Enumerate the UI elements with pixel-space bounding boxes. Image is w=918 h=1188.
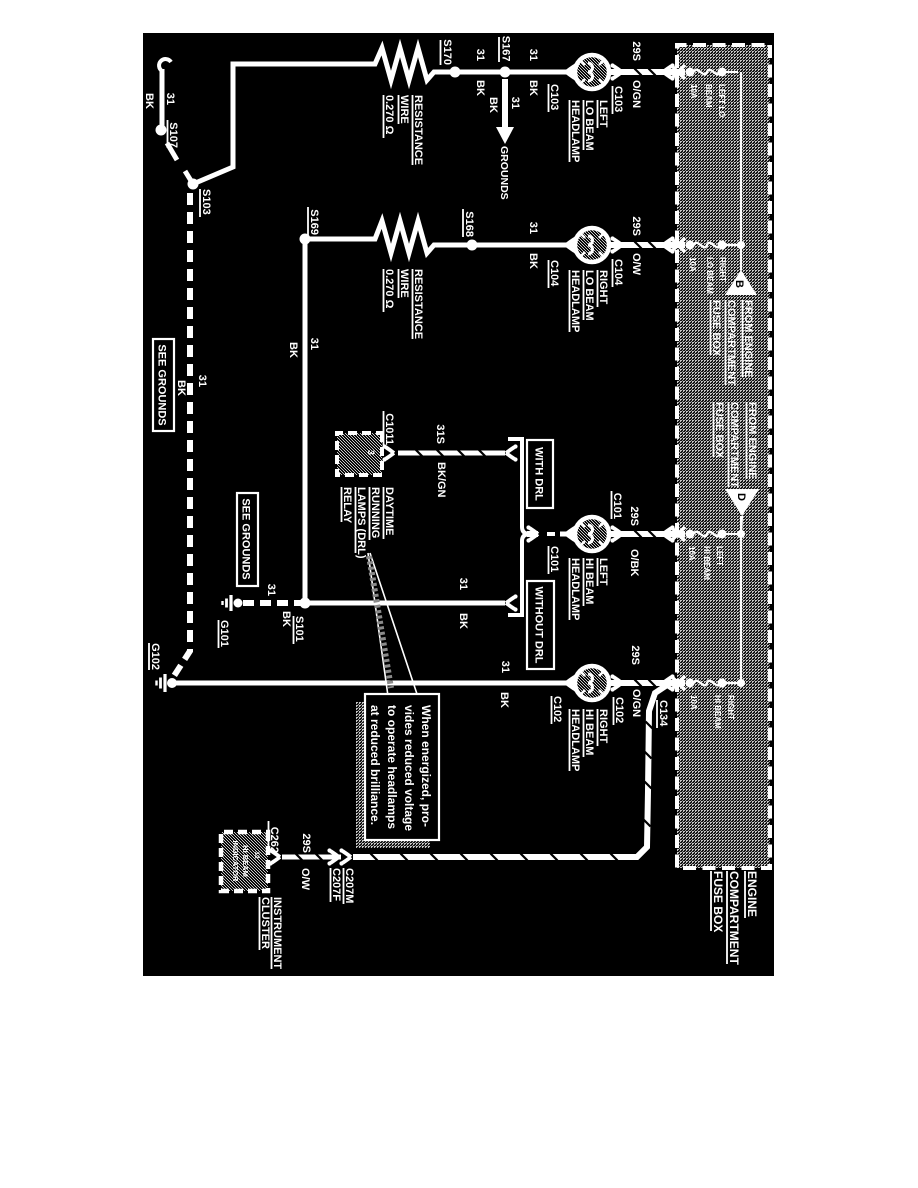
svg-text:BK: BK — [280, 611, 292, 627]
svg-text:O/GN: O/GN — [630, 689, 642, 717]
svg-text:10A: 10A — [687, 546, 696, 561]
svg-text:to operate headlamps: to operate headlamps — [385, 705, 399, 829]
svg-text:COMPARTMENT: COMPARTMENT — [728, 402, 740, 488]
svg-text:WITHOUT DRL: WITHOUT DRL — [533, 587, 545, 664]
svg-text:DAYTIME: DAYTIME — [383, 487, 395, 536]
svg-text:vides reduced voltage: vides reduced voltage — [402, 705, 416, 831]
svg-text:LO BEAM: LO BEAM — [705, 257, 714, 294]
svg-text:HEADLAMP: HEADLAMP — [569, 100, 581, 162]
svg-text:29S: 29S — [628, 506, 640, 526]
svg-text:31: 31 — [499, 661, 511, 673]
svg-text:S168: S168 — [463, 211, 475, 237]
svg-text:31: 31 — [164, 93, 176, 105]
svg-text:RESISTANCE: RESISTANCE — [412, 269, 424, 339]
svg-text:10A: 10A — [689, 84, 698, 99]
svg-text:FROM ENGINE: FROM ENGINE — [746, 402, 758, 480]
svg-text:C101: C101 — [611, 493, 623, 519]
svg-text:HI BEAM: HI BEAM — [583, 558, 595, 604]
svg-text:WIRE: WIRE — [398, 269, 410, 298]
svg-text:C262: C262 — [268, 827, 280, 853]
svg-text:12: 12 — [253, 851, 260, 859]
svg-text:G102: G102 — [149, 643, 161, 670]
svg-text:BK/GN: BK/GN — [435, 462, 447, 498]
svg-text:LO BEAM: LO BEAM — [583, 270, 595, 321]
svg-text:WIRE: WIRE — [398, 95, 410, 124]
svg-text:CLUSTER: CLUSTER — [259, 897, 271, 949]
svg-text:C102: C102 — [613, 697, 625, 723]
svg-text:31: 31 — [474, 49, 486, 61]
svg-text:S107: S107 — [167, 122, 179, 148]
svg-text:RIGHT: RIGHT — [726, 695, 735, 720]
svg-text:BK: BK — [527, 80, 539, 96]
svg-text:0.270 Ω: 0.270 Ω — [383, 95, 395, 135]
svg-text:at reduced brilliance.: at reduced brilliance. — [368, 705, 382, 825]
svg-text:RIGHT: RIGHT — [597, 270, 609, 305]
svg-text:HI BEAM: HI BEAM — [713, 695, 722, 729]
svg-text:INSTRUMENT: INSTRUMENT — [271, 897, 283, 969]
svg-text:BK: BK — [527, 253, 539, 269]
svg-text:HEADLAMP: HEADLAMP — [569, 270, 581, 332]
svg-text:BK: BK — [175, 380, 187, 396]
svg-text:BK: BK — [498, 692, 510, 708]
svg-text:BK: BK — [457, 613, 469, 629]
svg-text:C207M: C207M — [343, 868, 355, 903]
svg-text:FUSE BOX: FUSE BOX — [710, 300, 722, 357]
svg-text:HI BEAM: HI BEAM — [702, 546, 711, 580]
svg-text:C101: C101 — [548, 546, 560, 572]
svg-text:31: 31 — [308, 338, 320, 350]
svg-text:31: 31 — [265, 584, 277, 596]
svg-text:C102: C102 — [551, 696, 563, 722]
svg-text:29S: 29S — [629, 645, 641, 665]
svg-text:BEAM: BEAM — [704, 84, 713, 108]
svg-text:HI BEAM: HI BEAM — [241, 845, 250, 877]
svg-text:S167: S167 — [500, 36, 512, 62]
svg-text:29S: 29S — [630, 41, 642, 61]
svg-text:O/BK: O/BK — [628, 549, 640, 577]
svg-text:31S: 31S — [434, 424, 446, 444]
svg-text:HEADLAMP: HEADLAMP — [569, 558, 581, 620]
svg-text:29S: 29S — [630, 216, 642, 236]
svg-text:SEE GROUNDS: SEE GROUNDS — [156, 344, 168, 425]
svg-text:S170: S170 — [441, 39, 453, 65]
svg-text:G101: G101 — [218, 620, 230, 647]
svg-text:INDICATOR: INDICATOR — [231, 841, 240, 883]
svg-text:C103: C103 — [548, 84, 560, 110]
svg-text:BK: BK — [474, 80, 486, 96]
svg-text:RIGHT: RIGHT — [718, 257, 727, 282]
svg-text:FROM ENGINE: FROM ENGINE — [742, 300, 754, 378]
svg-text:3: 3 — [366, 450, 376, 455]
svg-text:O/W: O/W — [299, 868, 311, 891]
svg-text:LAMPS (DRL): LAMPS (DRL) — [355, 487, 367, 559]
svg-text:31: 31 — [527, 222, 539, 234]
svg-text:HEADLAMP: HEADLAMP — [569, 709, 581, 771]
svg-text:RESISTANCE: RESISTANCE — [412, 95, 424, 165]
svg-text:10A: 10A — [688, 257, 697, 272]
svg-text:WITH DRL: WITH DRL — [533, 447, 545, 501]
svg-text:10A: 10A — [689, 695, 698, 710]
svg-text:O/W: O/W — [630, 253, 642, 276]
svg-text:ENGINE: ENGINE — [745, 871, 759, 917]
svg-text:31: 31 — [527, 49, 539, 61]
svg-text:S101: S101 — [293, 616, 305, 642]
svg-text:0.270 Ω: 0.270 Ω — [383, 269, 395, 309]
svg-text:D: D — [735, 493, 747, 501]
svg-text:RUNNING: RUNNING — [369, 487, 381, 538]
svg-text:BK: BK — [143, 93, 155, 109]
svg-text:B: B — [733, 280, 745, 288]
svg-text:LEFT LO: LEFT LO — [717, 84, 726, 117]
svg-text:S103: S103 — [200, 189, 212, 215]
svg-text:C1011: C1011 — [383, 413, 395, 445]
svg-text:31: 31 — [509, 97, 521, 109]
svg-text:BK: BK — [287, 342, 299, 358]
svg-text:29S: 29S — [300, 833, 312, 853]
svg-text:COMPARTMENT: COMPARTMENT — [727, 871, 741, 965]
svg-text:C103: C103 — [612, 86, 624, 112]
svg-text:HI BEAM: HI BEAM — [583, 709, 595, 755]
svg-text:When energized, pro-: When energized, pro- — [419, 705, 433, 827]
svg-text:O/GN: O/GN — [630, 80, 642, 108]
svg-text:FUSE BOX: FUSE BOX — [713, 402, 725, 459]
svg-text:COMPARTMENT: COMPARTMENT — [725, 300, 737, 386]
svg-text:LO BEAM: LO BEAM — [583, 100, 595, 151]
svg-text:BK: BK — [487, 97, 499, 113]
svg-text:RELAY: RELAY — [341, 487, 353, 524]
svg-text:LEFT: LEFT — [597, 100, 609, 128]
svg-text:LEFT: LEFT — [597, 558, 609, 586]
svg-text:C134: C134 — [657, 700, 669, 727]
svg-text:31: 31 — [196, 375, 208, 387]
svg-text:LEFT: LEFT — [715, 546, 724, 566]
svg-text:SEE GROUNDS: SEE GROUNDS — [240, 498, 252, 579]
svg-text:C207F: C207F — [330, 868, 342, 901]
svg-text:RIGHT: RIGHT — [597, 709, 609, 744]
svg-text:C104: C104 — [548, 260, 560, 287]
svg-text:GROUNDS: GROUNDS — [498, 146, 510, 200]
svg-text:31: 31 — [457, 578, 469, 590]
svg-text:FUSE BOX: FUSE BOX — [711, 871, 725, 932]
svg-text:C104: C104 — [612, 259, 624, 286]
svg-text:S169: S169 — [308, 209, 320, 235]
